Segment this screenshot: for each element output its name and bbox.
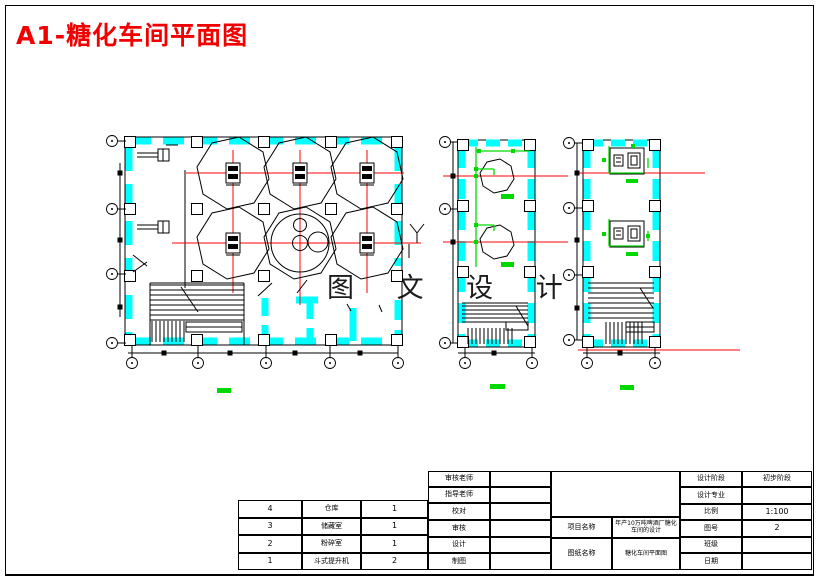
figure-no-label: 图号	[680, 520, 742, 537]
phase-label: 设计阶段	[680, 471, 742, 487]
section-plan-middle	[440, 137, 569, 390]
room-row-qty: 1	[361, 518, 428, 535]
staircase-right	[588, 283, 654, 344]
advisor-value	[490, 487, 551, 503]
scale-label: 比例	[680, 504, 742, 520]
draft-value	[490, 553, 551, 570]
pipe-symbols	[137, 145, 178, 233]
major-value	[742, 487, 812, 504]
room-row-name: 斗式提升机	[302, 553, 361, 570]
room-row-qty: 2	[361, 553, 428, 570]
date-value	[742, 553, 812, 570]
phase-value: 初步阶段	[742, 471, 812, 487]
date-label: 日期	[680, 553, 742, 570]
room-row-name: 储藏室	[302, 518, 361, 535]
drawing-sheet: A1-糖化车间平面图 图 文 设 计	[0, 0, 819, 579]
staircase-middle	[462, 303, 528, 344]
titleblock-blank-cell	[551, 471, 680, 517]
room-row-name: 仓库	[302, 500, 361, 518]
green-marker	[620, 385, 634, 390]
drawing-name: 糖化车间平面图	[612, 538, 680, 570]
project-name: 年产10万吨啤酒厂糖化车间的设计	[612, 517, 680, 538]
room-row-no: 1	[238, 553, 302, 570]
design-label: 设计	[428, 537, 490, 553]
green-marker	[217, 388, 231, 393]
mill-unit-1	[610, 148, 644, 174]
section-plan-right	[564, 138, 741, 391]
axis-bubbles-left	[107, 136, 127, 349]
project-label: 项目名称	[551, 517, 612, 538]
scale-value: 1:100	[742, 504, 812, 520]
draft-label: 制图	[428, 553, 490, 570]
mill-unit-2	[610, 221, 644, 247]
room-row-qty: 1	[361, 535, 428, 553]
room-row-no: 2	[238, 535, 302, 553]
major-label: 设计专业	[680, 487, 742, 504]
review-teacher-value	[490, 471, 551, 487]
axis-bubbles-bottom	[127, 346, 404, 369]
y-branch-symbol	[410, 224, 424, 243]
design-value	[490, 537, 551, 553]
class-label: 班级	[680, 537, 742, 553]
figure-no-value: 2	[742, 520, 812, 537]
green-marker	[490, 384, 505, 389]
review-teacher-label: 审核老师	[428, 471, 490, 487]
drawing-name-label: 图纸名称	[551, 538, 612, 570]
advisor-label: 指导老师	[428, 487, 490, 503]
main-floor-plan	[107, 136, 425, 394]
review-value	[490, 520, 551, 537]
review-label: 审核	[428, 520, 490, 537]
room-row-no: 4	[238, 500, 302, 518]
class-value	[742, 537, 812, 553]
room-row-name: 粉碎室	[302, 535, 361, 553]
room-row-qty: 1	[361, 500, 428, 518]
room-row-no: 3	[238, 518, 302, 535]
proofread-value	[490, 503, 551, 520]
proofread-label: 校对	[428, 503, 490, 520]
